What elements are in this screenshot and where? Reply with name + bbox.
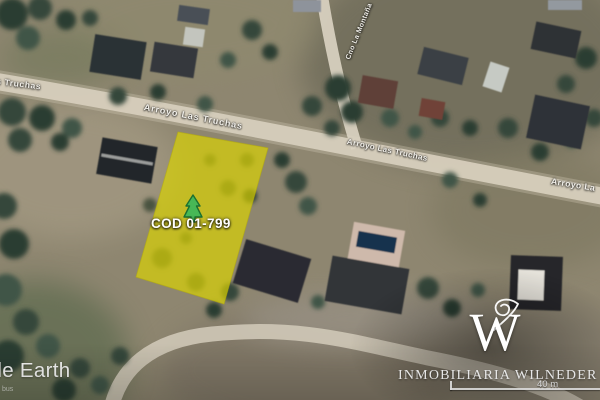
agency-name: INMOBILIARIA WILNEDER bbox=[398, 368, 588, 384]
trailer-roof bbox=[482, 62, 509, 93]
patio bbox=[183, 27, 205, 48]
building-roof bbox=[150, 42, 198, 79]
building-roof bbox=[358, 75, 398, 109]
building-roof bbox=[293, 0, 321, 12]
building-roof bbox=[419, 98, 446, 120]
building-roof bbox=[526, 95, 590, 150]
building-roof bbox=[89, 34, 146, 80]
map-canvas[interactable]: s Truchas Arroyo Las Truchas Arroyo Las … bbox=[0, 0, 600, 400]
parcel-code-label: COD 01-799 bbox=[151, 216, 231, 231]
scale-bar-label: 40 m bbox=[537, 379, 558, 390]
agency-monogram: W bbox=[460, 305, 530, 359]
courtyard bbox=[517, 270, 544, 301]
google-earth-watermark: Google Earth bbox=[0, 359, 70, 383]
building-roof bbox=[417, 47, 468, 85]
building-roof bbox=[233, 239, 311, 303]
imagery-attribution: bus bbox=[2, 386, 13, 393]
building-roof bbox=[548, 0, 582, 10]
scale-bar bbox=[450, 388, 600, 390]
building-roof bbox=[531, 22, 582, 59]
building-roof bbox=[177, 5, 210, 25]
